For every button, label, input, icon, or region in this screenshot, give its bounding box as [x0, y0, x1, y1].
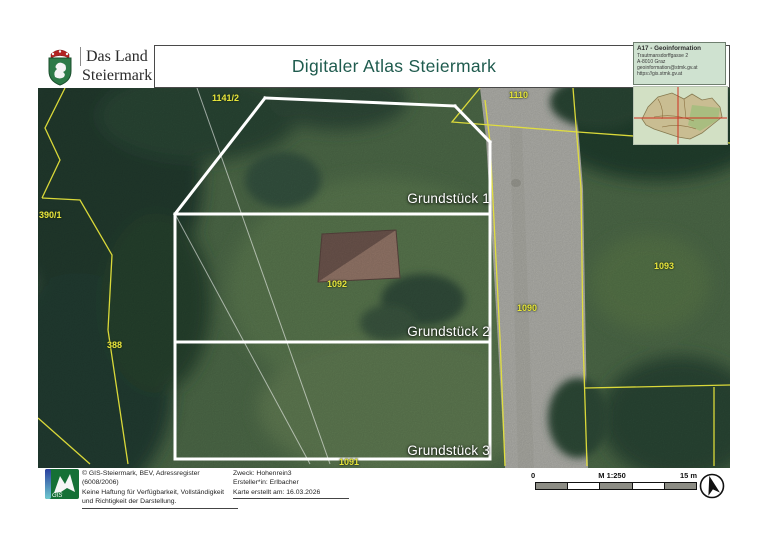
scale-segment	[600, 483, 631, 489]
department-website: https://gis.stmk.gv.at	[637, 71, 722, 77]
parcel-label-1090: 1090	[517, 303, 537, 313]
aerial-photo	[38, 88, 730, 468]
gis-logo-text: GIS	[52, 493, 62, 499]
styria-outline-map	[634, 87, 727, 144]
map-creator: Ersteller*in: Erlbacher	[233, 478, 349, 487]
plot-label-grundstueck-2: Grundstück 2	[398, 324, 490, 339]
map-canvas: 1141/2 1110 390/1 388 1092 1090 1093 109…	[38, 88, 730, 468]
north-arrow-icon	[698, 472, 726, 500]
parcel-label-1141-2: 1141/2	[212, 93, 239, 103]
scale-segment	[567, 483, 600, 489]
scale-segment	[632, 483, 665, 489]
scale-segment	[536, 483, 567, 489]
map-purpose: Zweck: Hohenrein3	[233, 469, 349, 478]
scale-bar	[535, 482, 697, 490]
brand-line1: Das Land	[80, 47, 152, 66]
map-meta-block: Zweck: Hohenrein3 Ersteller*in: Erlbache…	[233, 469, 349, 499]
parcel-label-1091: 1091	[339, 457, 359, 467]
parcel-label-1092: 1092	[327, 279, 347, 289]
page-title: Digitaler Atlas Steiermark	[155, 46, 633, 87]
brand-logo: Das Land Steiermark	[45, 47, 152, 87]
copyright-line2: Keine Haftung für Verfügbarkeit, Vollstä…	[82, 488, 238, 497]
department-info-box: A17 - Geoinformation Trautmansdorffgasse…	[633, 42, 726, 85]
parcel-label-388: 388	[107, 340, 122, 350]
scale-ratio-label: M 1:250	[572, 471, 652, 480]
scale-zero-label: 0	[531, 471, 535, 480]
gis-steiermark-logo-icon: GIS	[45, 469, 79, 499]
copyright-line3: und Richtigkeit der Darstellung.	[82, 497, 238, 506]
copyright-block: © GIS-Steiermark, BEV, Adressregister (6…	[82, 469, 238, 509]
map-created-date: Karte erstellt am: 16.03.2026	[233, 488, 349, 497]
overview-map	[633, 86, 728, 145]
plot-label-grundstueck-1: Grundstück 1	[398, 191, 490, 206]
department-name: A17 - Geoinformation	[637, 45, 722, 53]
parcel-label-1110: 1110	[509, 90, 528, 100]
parcel-label-1093: 1093	[654, 261, 674, 271]
copyright-line1: © GIS-Steiermark, BEV, Adressregister (6…	[82, 469, 238, 488]
parcel-label-390-1: 390/1	[39, 210, 62, 220]
scale-max-label: 15 m	[680, 471, 697, 480]
brand-line2: Steiermark	[80, 66, 152, 85]
scale-segment	[665, 483, 696, 489]
styria-coat-of-arms-icon	[45, 47, 75, 92]
plot-label-grundstueck-3: Grundstück 3	[398, 443, 490, 458]
